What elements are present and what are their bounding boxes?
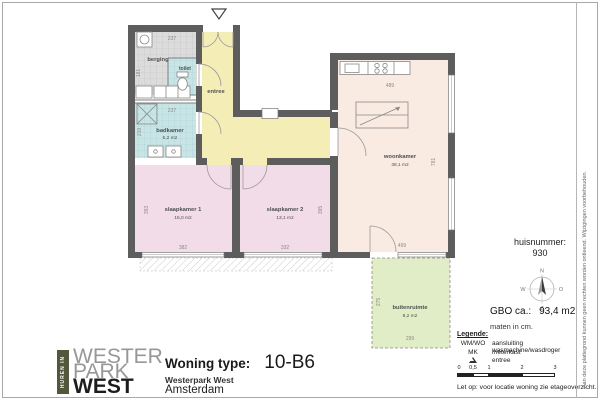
legend-entree-triangle-icon	[457, 357, 489, 365]
dim: 393	[144, 206, 150, 215]
scale-bar: 0 0,5 1 2 3	[457, 365, 557, 381]
units-note: maten in cm.	[490, 322, 533, 331]
buitenruimte-area: 8,2 m2	[403, 313, 418, 319]
city-name: Amsterdam	[165, 384, 224, 396]
dim: 181	[136, 69, 142, 78]
berging-label: berging	[147, 57, 169, 63]
scale-2: 2	[520, 365, 523, 371]
dim: 275	[376, 298, 382, 307]
dim: 237	[168, 108, 177, 114]
slaapkamer2-area: 13,1 m2	[276, 215, 294, 221]
buitenruimte-label: buitenruimte	[392, 305, 428, 311]
slaapkamer1-label: slaapkamer 1	[165, 207, 203, 213]
logo: WESTER PARK WEST	[73, 349, 163, 394]
disclaimer-column: Aan deze plattegrond kunnen geen rechten…	[576, 2, 598, 398]
dim: 332	[281, 245, 290, 251]
compass-e: O	[559, 287, 564, 293]
dim: 395	[318, 206, 324, 215]
scale-0: 0	[457, 365, 460, 371]
entree-marker-icon	[212, 9, 226, 19]
woonkamer-area: 38,1 m2	[391, 162, 409, 168]
gbo-label: GBO ca.:	[490, 306, 531, 317]
logo-tagline-bar: HUREN IN	[57, 350, 69, 394]
logo-line3: WEST	[73, 379, 163, 394]
room-buitenruimte	[372, 258, 450, 348]
entree-label: entree	[207, 89, 225, 95]
dim: 382	[179, 245, 188, 251]
window-entree-hall	[262, 109, 278, 119]
dim: 781	[431, 158, 437, 167]
sink-icon	[148, 146, 163, 157]
dim: 219	[137, 128, 143, 137]
badkamer-area: 5,2 m2	[163, 135, 178, 141]
scale-3: 3	[553, 365, 556, 371]
meterkast-box	[136, 86, 152, 98]
legend-value-entree: entree	[492, 357, 510, 364]
compass-needle	[542, 276, 546, 295]
disclaimer-text: Aan deze plattegrond kunnen geen rechten…	[582, 171, 588, 388]
toilet-tank-icon	[177, 72, 188, 77]
slaapkamer2-label: slaapkamer 2	[267, 207, 304, 213]
balcony-hatch	[140, 258, 332, 271]
legend-title: Legende:	[457, 331, 488, 338]
toilet-label: toilet	[179, 66, 191, 72]
floorplan-page: berging toilet badkamer 5,2 m2 entree sl…	[0, 0, 600, 400]
toilet-bowl-icon	[178, 78, 188, 90]
legend-key-mk: MK	[457, 349, 489, 356]
scale-05: 0,5	[469, 365, 477, 371]
slaapkamer1-area: 15,0 m2	[174, 215, 192, 221]
house-number-label: huisnummer:	[500, 237, 580, 248]
house-number: huisnummer: 930	[500, 237, 580, 259]
room-entree	[202, 32, 330, 165]
compass-n: N	[540, 269, 544, 275]
woning-type-value: 10-B6	[264, 352, 315, 374]
scale-1: 1	[487, 365, 490, 371]
washer-icon	[137, 32, 152, 47]
woning-type-row: Woning type: 10-B6	[165, 352, 315, 374]
gbo-value: 93,4 m2	[539, 306, 575, 317]
badkamer-label: badkamer	[156, 128, 184, 134]
legend-value-mk: meterkast	[492, 349, 521, 356]
woonkamer-label: woonkamer	[383, 154, 417, 160]
logo-tagline: HUREN IN	[60, 356, 66, 388]
dim: 499	[398, 243, 407, 249]
dim: 299	[406, 336, 415, 342]
house-number-value: 930	[500, 248, 580, 259]
gbo-area: GBO ca.:93,4 m2	[490, 306, 575, 317]
compass-w: W	[520, 287, 526, 293]
legend-key-wmwo: WM/WO	[457, 340, 489, 347]
dim: 237	[168, 36, 177, 42]
sink-icon	[166, 146, 181, 157]
dim: 489	[386, 83, 395, 89]
woning-type-label: Woning type:	[165, 356, 250, 371]
